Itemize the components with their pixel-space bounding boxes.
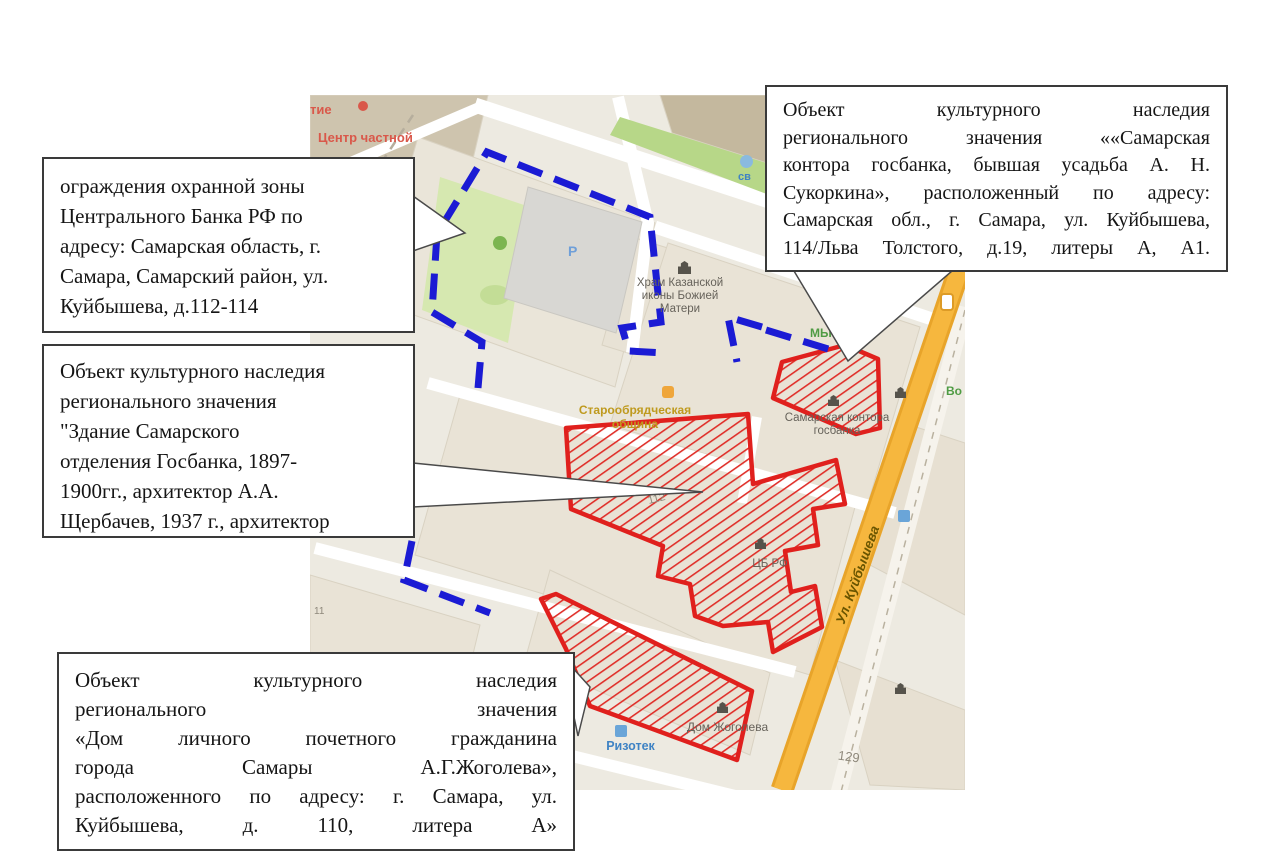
map-pin-icon xyxy=(358,101,368,111)
poi-blue-circle-icon xyxy=(740,155,753,168)
poi-blue-icon xyxy=(898,510,910,522)
parking-icon: Р xyxy=(568,243,577,259)
figure-canvas: Р тие Центр частной Храм Казанскойиконы … xyxy=(0,0,1280,853)
callout-kontora-gosbanka: Объект культурного наследиярегионального… xyxy=(765,85,1228,272)
callout-protection-zone: ограждения охранной зоныЦентрального Бан… xyxy=(42,157,415,333)
callout-gosbank-building: Объект культурного наследиярегионального… xyxy=(42,344,415,538)
rizotek-icon xyxy=(615,725,627,737)
callout-zhogolev-house: Объект культурного наследиярегионального… xyxy=(57,652,575,851)
old-believers-icon xyxy=(662,386,674,398)
route-shield-icon xyxy=(940,293,954,311)
